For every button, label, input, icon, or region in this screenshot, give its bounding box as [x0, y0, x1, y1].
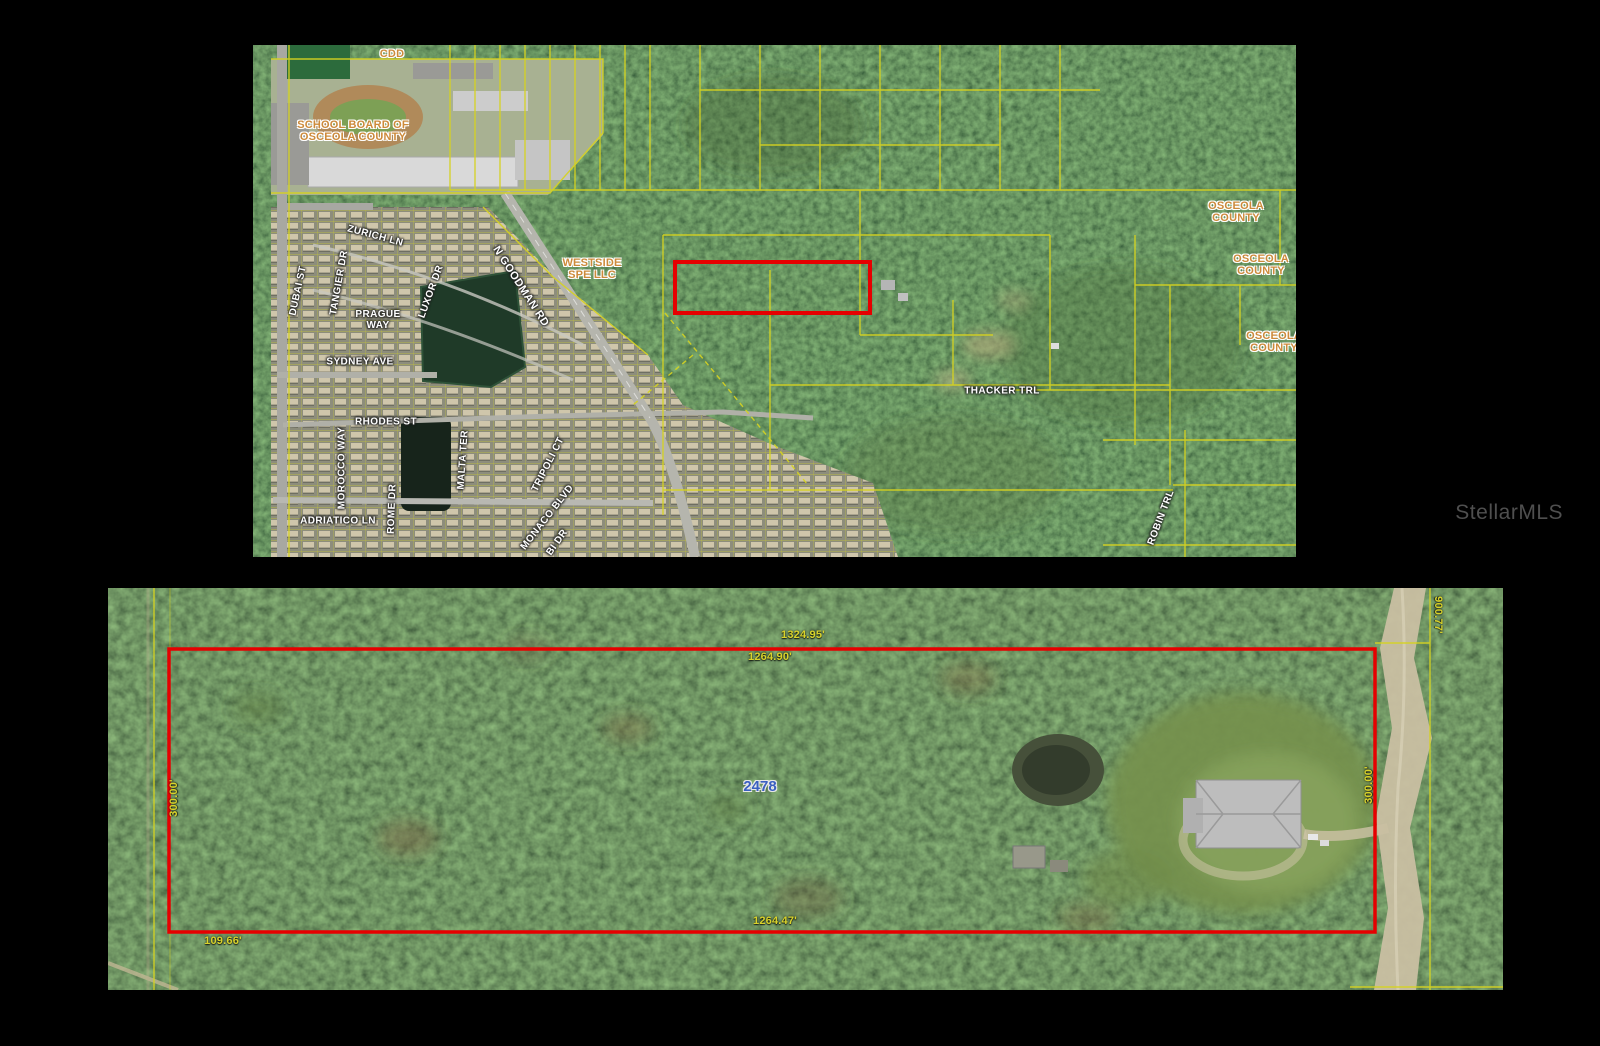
overview-map-graphic	[253, 45, 1296, 557]
parcel-map-graphic	[108, 588, 1503, 990]
stellar-mls-watermark: StellarMLS	[1455, 501, 1563, 525]
parcel-aerial-map: 1324.95' 1264.90' 1264.47' 109.66' 300.0…	[108, 588, 1503, 990]
overview-aerial-map: CDD SCHOOL BOARD OF OSCEOLA COUNTY WESTS…	[253, 45, 1296, 557]
